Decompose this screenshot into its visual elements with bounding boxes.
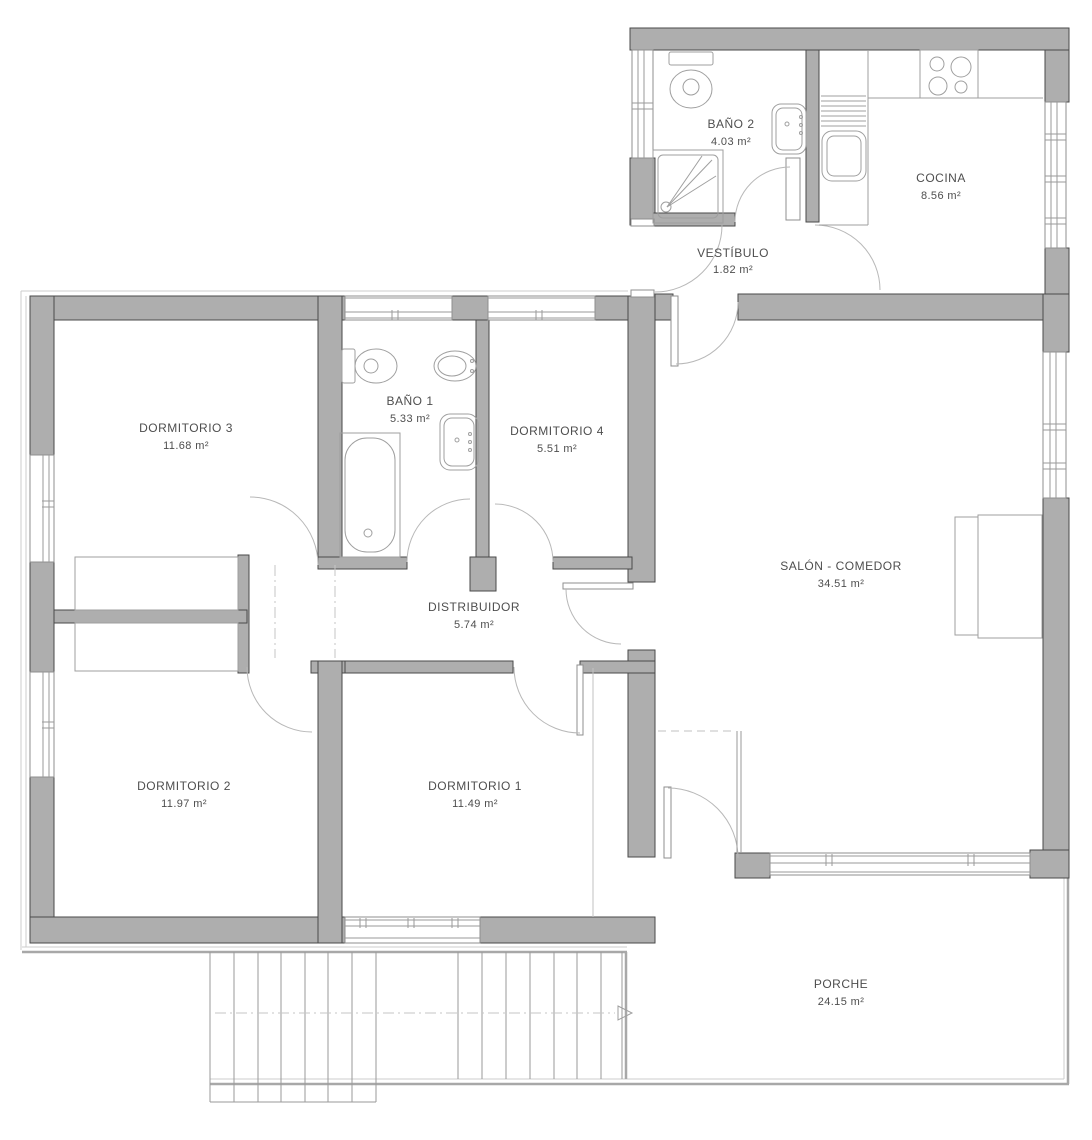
- svg-text:11.97 m²: 11.97 m²: [161, 798, 207, 810]
- washbasin-icon: [772, 104, 806, 154]
- door-arc: [668, 788, 738, 858]
- door-arc: [514, 667, 580, 733]
- room-label-dormitorio3: DORMITORIO 3 11.68 m²: [139, 421, 233, 452]
- wardrobe-icon: [75, 557, 238, 610]
- door-leaf: [577, 665, 583, 735]
- banyo1-fixtures: [340, 349, 478, 557]
- door-leaf: [563, 583, 633, 589]
- window: [345, 296, 452, 320]
- svg-text:DORMITORIO 4: DORMITORIO 4: [510, 424, 604, 438]
- window: [30, 672, 54, 777]
- floor-plan: BAÑO 2 4.03 m² COCINA 8.56 m² VESTÍBULO …: [0, 0, 1092, 1140]
- washbasin-icon: [440, 414, 478, 470]
- door-arc: [407, 499, 470, 562]
- svg-text:11.49 m²: 11.49 m²: [452, 798, 498, 810]
- window: [30, 455, 54, 562]
- wardrobe-icon: [75, 623, 238, 671]
- door-leaf: [671, 296, 678, 366]
- window: [1045, 102, 1066, 248]
- svg-text:5.74 m²: 5.74 m²: [454, 619, 494, 631]
- sofa-icon: [955, 515, 1042, 638]
- floor-plan-drawing: BAÑO 2 4.03 m² COCINA 8.56 m² VESTÍBULO …: [0, 0, 1092, 1140]
- svg-text:5.51 m²: 5.51 m²: [537, 443, 577, 455]
- room-label-cocina: COCINA 8.56 m²: [916, 171, 966, 202]
- svg-text:DORMITORIO 2: DORMITORIO 2: [137, 779, 231, 793]
- svg-text:COCINA: COCINA: [916, 171, 966, 185]
- door-arc: [495, 504, 553, 562]
- svg-text:BAÑO 1: BAÑO 1: [386, 394, 433, 408]
- room-label-dormitorio2: DORMITORIO 2 11.97 m²: [137, 779, 231, 810]
- bathtub-icon: [340, 433, 400, 557]
- door-arc: [676, 302, 738, 364]
- door-arc: [815, 225, 880, 290]
- svg-text:34.51 m²: 34.51 m²: [818, 578, 865, 590]
- svg-text:DORMITORIO 1: DORMITORIO 1: [428, 779, 522, 793]
- room-label-dormitorio1: DORMITORIO 1 11.49 m²: [428, 779, 522, 810]
- svg-text:5.33 m²: 5.33 m²: [390, 413, 430, 425]
- projection-lines: [275, 565, 741, 917]
- window: [1043, 352, 1066, 498]
- room-label-banyo1: BAÑO 1 5.33 m²: [386, 394, 433, 425]
- svg-text:SALÓN - COMEDOR: SALÓN - COMEDOR: [780, 558, 902, 573]
- door-arc: [735, 167, 790, 222]
- door-arc: [566, 589, 621, 644]
- room-label-dormitorio4: DORMITORIO 4 5.51 m²: [510, 424, 604, 455]
- room-label-vestibulo: VESTÍBULO 1.82 m²: [697, 245, 769, 276]
- toilet-icon: [669, 52, 713, 108]
- window: [770, 853, 1030, 875]
- stove-icon: [920, 50, 978, 98]
- svg-text:DISTRIBUIDOR: DISTRIBUIDOR: [428, 600, 520, 614]
- svg-text:11.68 m²: 11.68 m²: [163, 440, 209, 452]
- toilet-icon: [342, 349, 397, 383]
- svg-text:PORCHE: PORCHE: [814, 977, 868, 991]
- window: [488, 296, 595, 320]
- room-label-distribuidor: DISTRIBUIDOR 5.74 m²: [428, 600, 520, 631]
- svg-text:24.15 m²: 24.15 m²: [818, 996, 865, 1008]
- furniture: [75, 515, 1042, 671]
- svg-text:VESTÍBULO: VESTÍBULO: [697, 245, 769, 260]
- svg-text:8.56 m²: 8.56 m²: [921, 190, 961, 202]
- window: [345, 917, 480, 943]
- door-leaf: [664, 787, 671, 858]
- room-label-porche: PORCHE 24.15 m²: [814, 977, 868, 1008]
- shower-icon: [653, 150, 723, 223]
- window: [632, 50, 653, 158]
- room-label-salon: SALÓN - COMEDOR 34.51 m²: [780, 558, 902, 590]
- door-arc: [247, 667, 312, 732]
- svg-text:4.03 m²: 4.03 m²: [711, 136, 751, 148]
- svg-text:BAÑO 2: BAÑO 2: [707, 117, 754, 131]
- bidet-icon: [434, 351, 476, 381]
- entry-door-jambs: [631, 219, 654, 297]
- door-arc: [250, 497, 318, 565]
- kitchen-sink-icon: [822, 131, 866, 181]
- svg-text:1.82 m²: 1.82 m²: [713, 264, 753, 276]
- svg-text:DORMITORIO 3: DORMITORIO 3: [139, 421, 233, 435]
- room-label-banyo2: BAÑO 2 4.03 m²: [707, 117, 754, 148]
